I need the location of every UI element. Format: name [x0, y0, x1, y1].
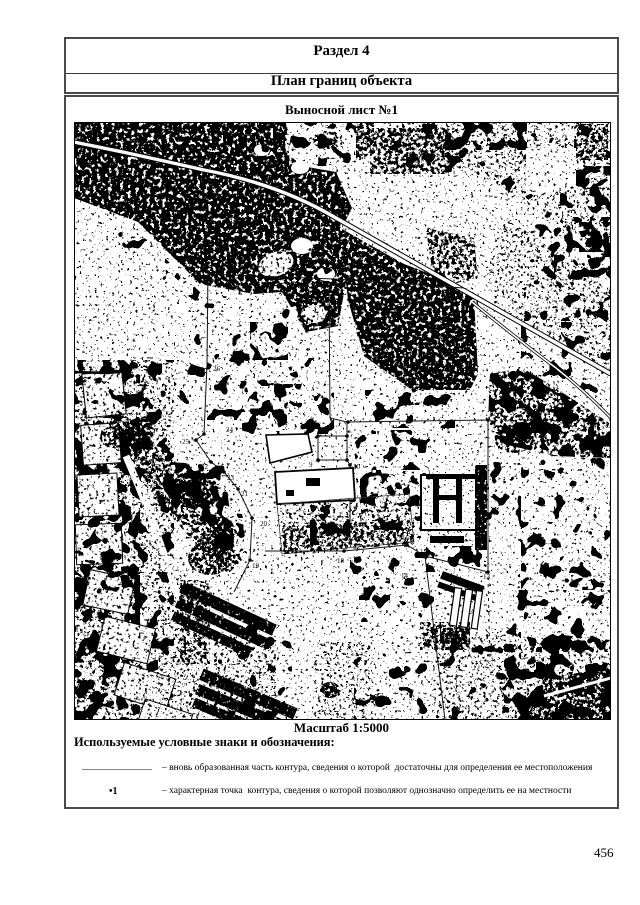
svg-text:7: 7: [284, 423, 288, 431]
svg-text:12: 12: [489, 410, 497, 418]
svg-text:18: 18: [337, 557, 345, 565]
svg-text:26: 26: [213, 365, 221, 373]
svg-text:21: 21: [241, 490, 249, 498]
svg-text:20: 20: [260, 520, 268, 528]
svg-text:9: 9: [309, 461, 313, 469]
svg-text:22: 22: [201, 463, 209, 471]
svg-text:10: 10: [353, 463, 361, 471]
svg-text:25: 25: [182, 438, 190, 446]
svg-text:14: 14: [401, 572, 409, 580]
svg-text:24: 24: [226, 426, 234, 434]
svg-text:23: 23: [227, 474, 235, 482]
svg-text:13: 13: [483, 573, 491, 581]
svg-text:19: 19: [252, 562, 260, 570]
